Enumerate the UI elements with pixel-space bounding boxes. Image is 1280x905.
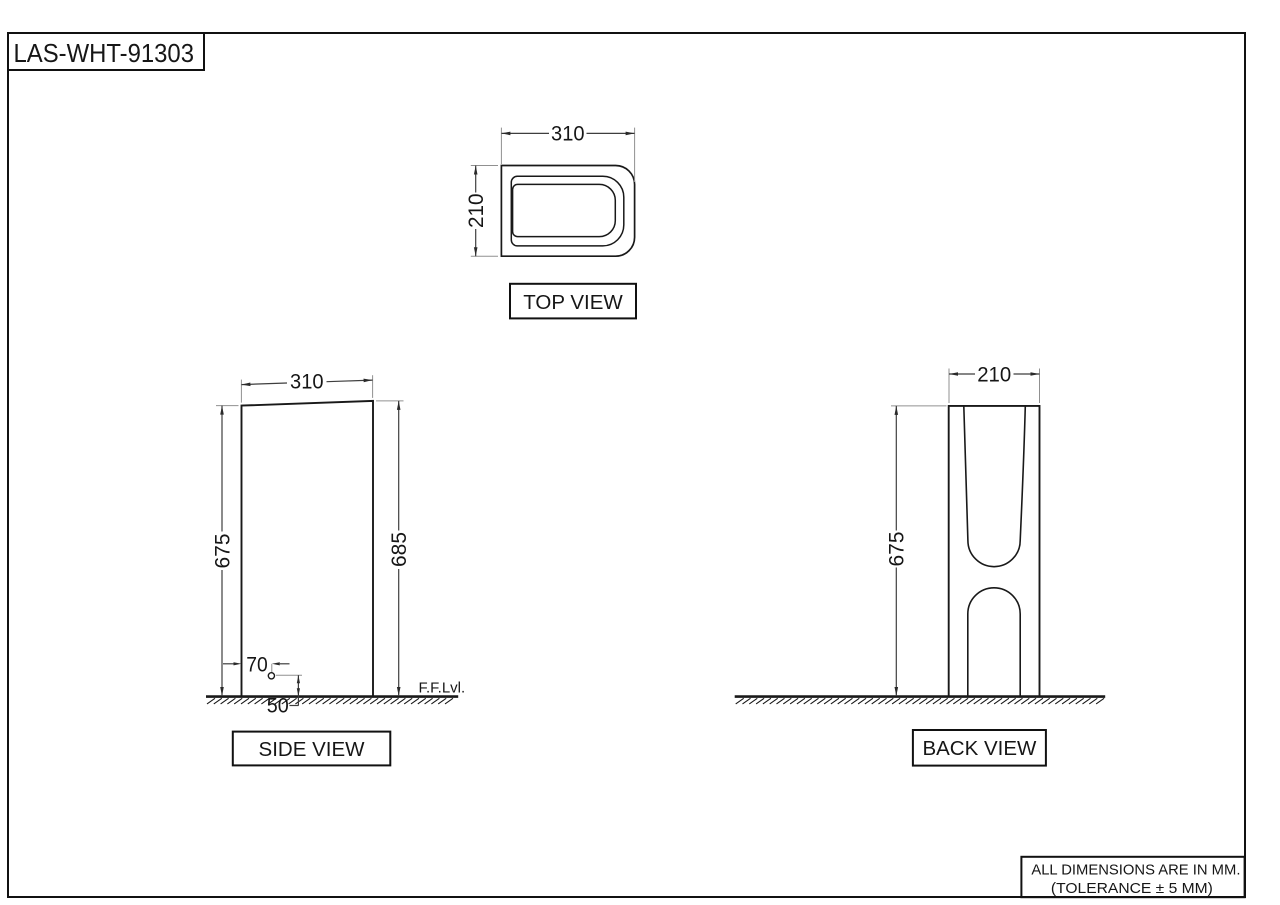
svg-text:210: 210	[465, 194, 488, 229]
svg-text:675: 675	[886, 532, 909, 567]
svg-text:310: 310	[290, 370, 324, 393]
svg-text:675: 675	[211, 534, 234, 569]
svg-text:TOP VIEW: TOP VIEW	[523, 291, 623, 314]
svg-text:310: 310	[551, 123, 585, 146]
svg-text:BACK VIEW: BACK VIEW	[922, 737, 1037, 760]
svg-text:ALL DIMENSIONS ARE IN MM.: ALL DIMENSIONS ARE IN MM.	[1031, 863, 1240, 879]
svg-text:685: 685	[388, 532, 411, 567]
svg-text:210: 210	[977, 363, 1011, 386]
svg-text:(TOLERANCE ± 5 MM): (TOLERANCE ± 5 MM)	[1051, 881, 1213, 897]
svg-text:F.F.Lvl.: F.F.Lvl.	[419, 680, 466, 697]
svg-text:50: 50	[267, 694, 289, 717]
svg-text:SIDE VIEW: SIDE VIEW	[259, 738, 366, 761]
svg-text:LAS-WHT-91303: LAS-WHT-91303	[14, 38, 195, 68]
svg-text:70: 70	[246, 653, 268, 676]
